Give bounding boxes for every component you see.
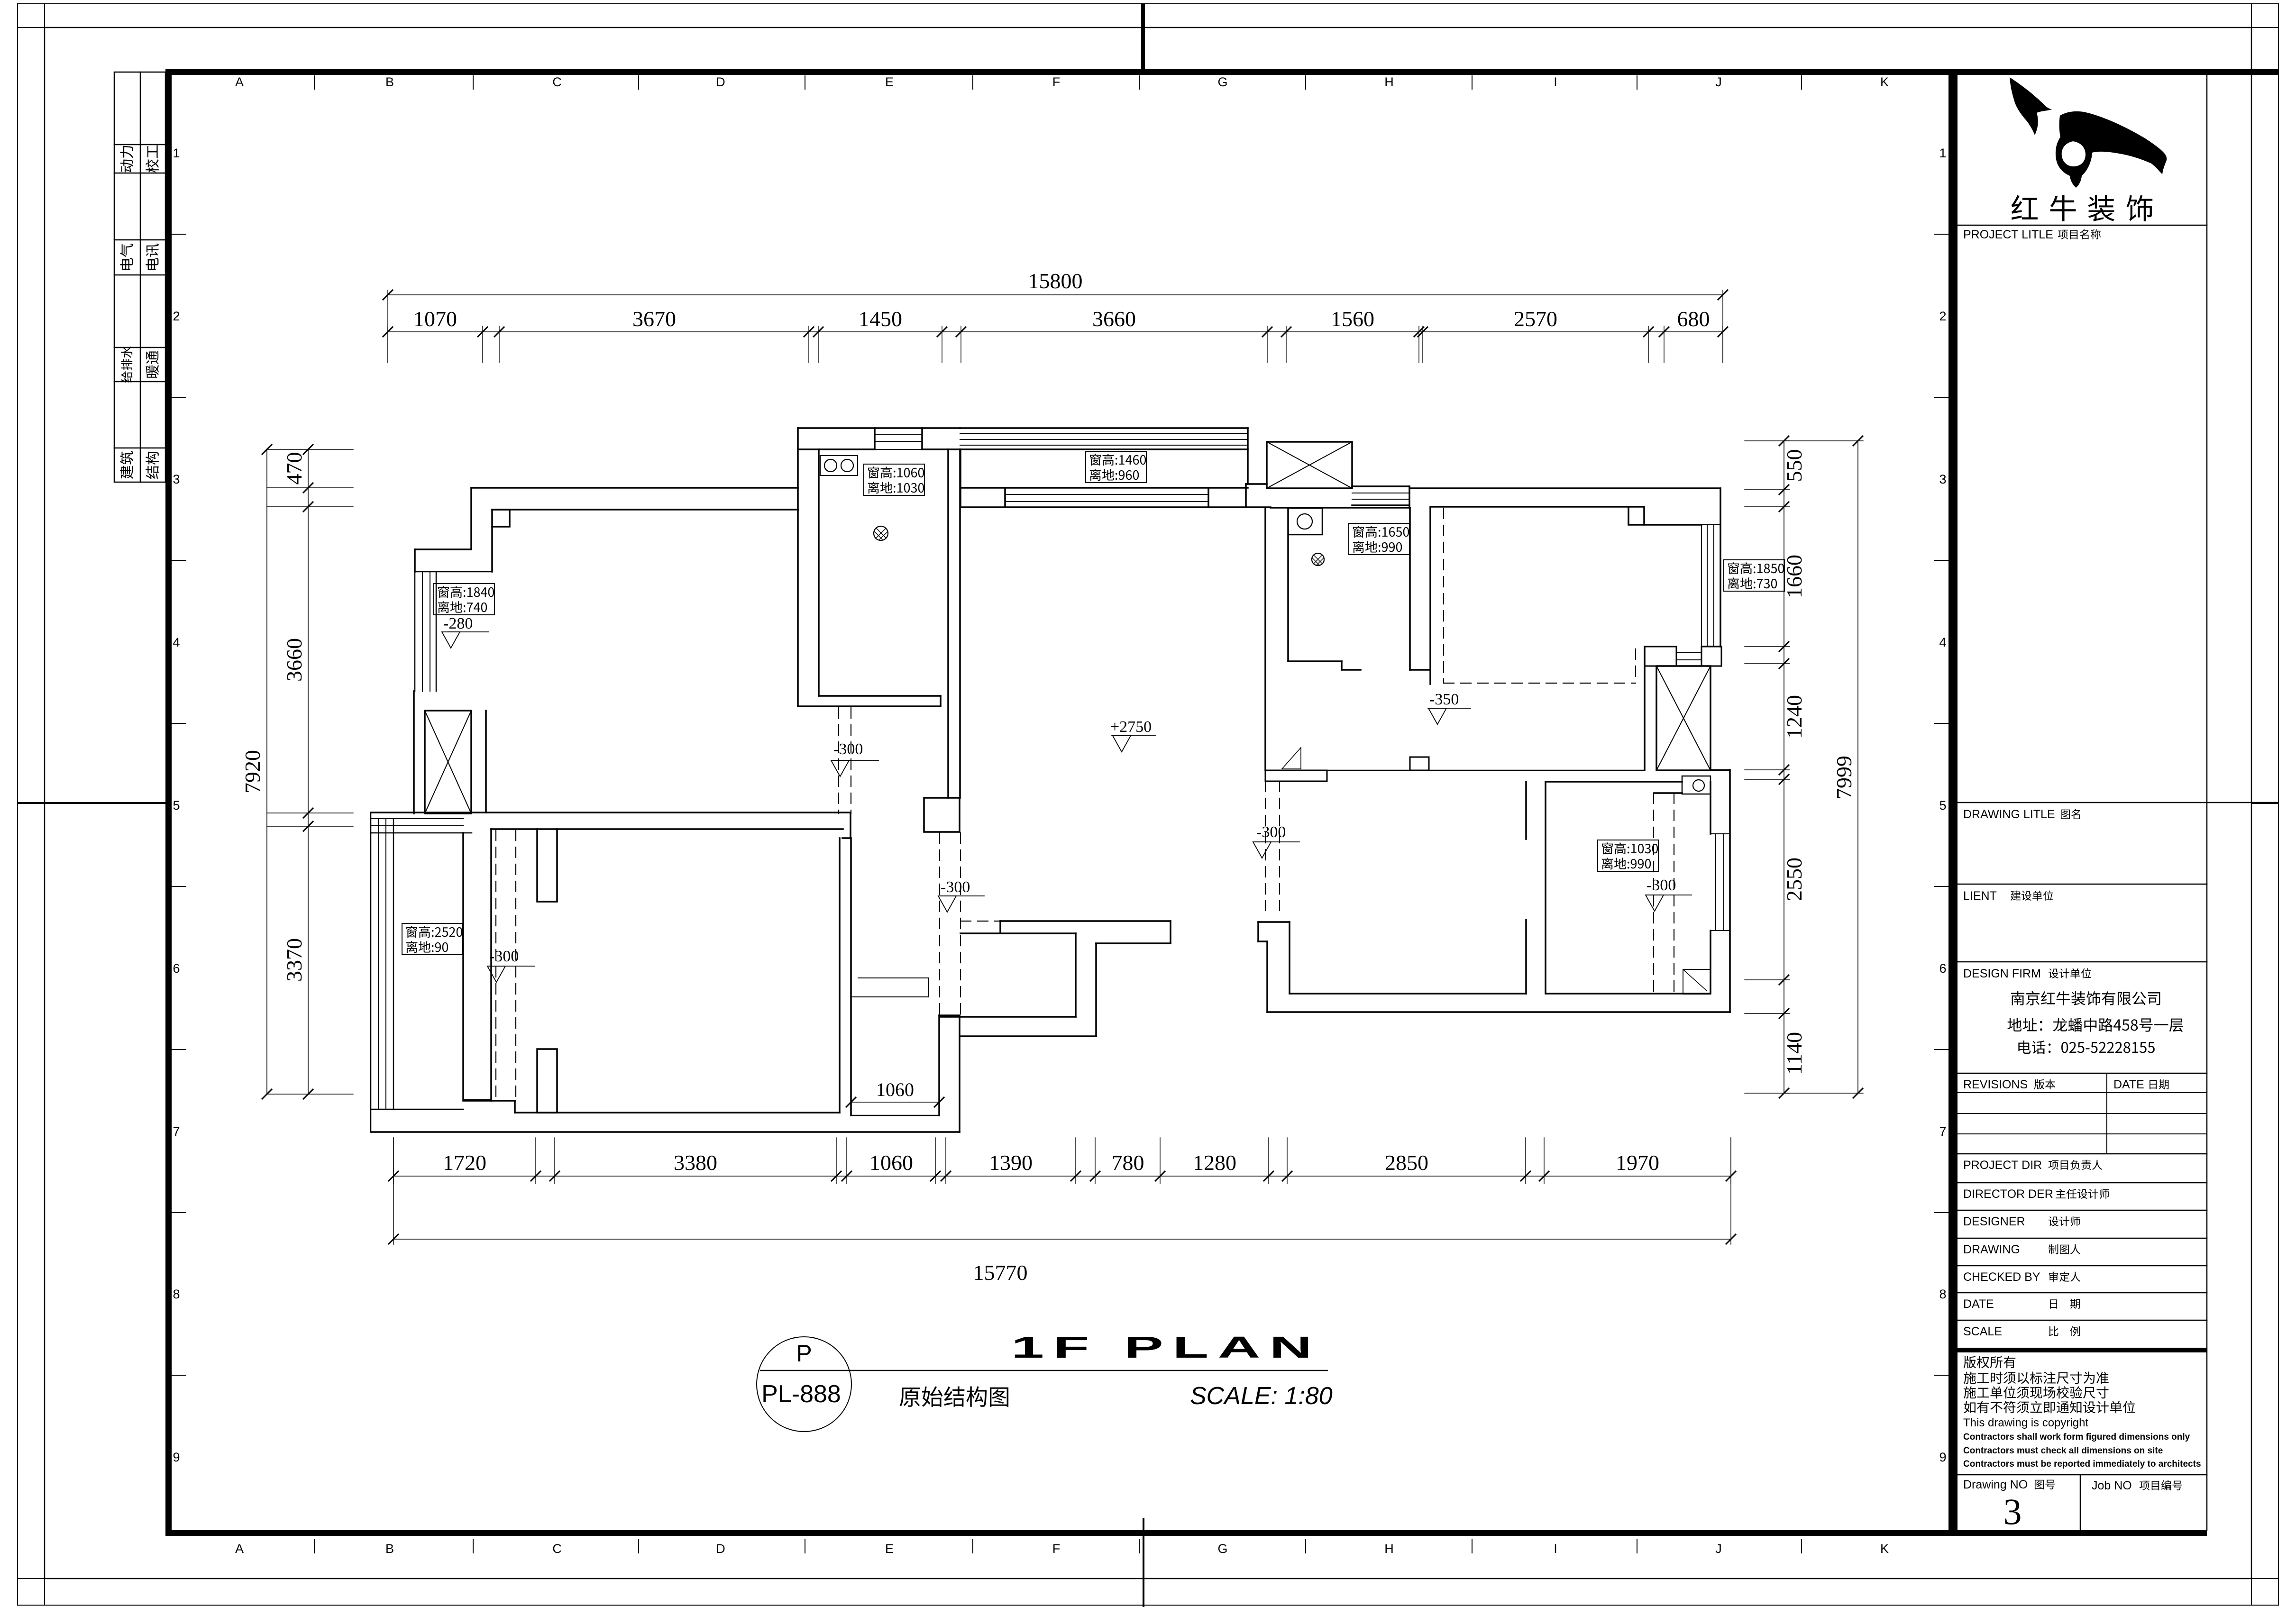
- svg-text:DESIGNER: DESIGNER: [1963, 1215, 2025, 1228]
- svg-text:Job NO: Job NO: [2092, 1479, 2132, 1492]
- svg-text:SCALE: SCALE: [1963, 1325, 2002, 1338]
- svg-text:F: F: [1052, 1542, 1061, 1556]
- svg-text:3660: 3660: [282, 638, 306, 682]
- svg-text:P: P: [796, 1340, 812, 1367]
- svg-text:1F PLAN: 1F PLAN: [1011, 1330, 1321, 1364]
- svg-text:G: G: [1217, 75, 1227, 89]
- svg-text:7: 7: [173, 1124, 180, 1139]
- svg-text:1140: 1140: [1782, 1032, 1806, 1075]
- svg-text:1: 1: [173, 146, 180, 160]
- svg-text:7: 7: [1939, 1124, 1946, 1139]
- svg-text:15770: 15770: [973, 1260, 1028, 1285]
- svg-text:7920: 7920: [240, 750, 265, 794]
- svg-text:DIRECTOR DER: DIRECTOR DER: [1963, 1187, 2053, 1201]
- svg-text:B: B: [385, 1542, 394, 1556]
- svg-text:PL-888: PL-888: [761, 1380, 841, 1408]
- svg-text:Drawing NO: Drawing NO: [1963, 1478, 2028, 1491]
- svg-text:K: K: [1880, 75, 1889, 89]
- svg-text:J: J: [1715, 75, 1722, 89]
- svg-text:E: E: [885, 1542, 894, 1556]
- svg-text:780: 780: [1112, 1150, 1144, 1175]
- svg-text:SCALE: 1:80: SCALE: 1:80: [1190, 1382, 1333, 1410]
- svg-text:3670: 3670: [632, 307, 676, 331]
- svg-text:-300: -300: [489, 948, 519, 965]
- svg-text:I: I: [1554, 75, 1557, 89]
- svg-text:-280: -280: [443, 615, 473, 632]
- svg-text:1060: 1060: [869, 1150, 913, 1175]
- svg-text:5: 5: [1939, 798, 1946, 813]
- svg-text:6: 6: [1939, 961, 1946, 976]
- svg-text:1070: 1070: [413, 307, 457, 331]
- svg-text:2550: 2550: [1782, 858, 1806, 901]
- svg-text:9: 9: [1939, 1450, 1946, 1464]
- svg-text:REVISIONS: REVISIONS: [1963, 1078, 2028, 1091]
- svg-text:680: 680: [1677, 307, 1710, 331]
- svg-text:Contractors shall work form fi: Contractors shall work form figured dime…: [1963, 1432, 2190, 1442]
- svg-text:CHECKED BY: CHECKED BY: [1963, 1270, 2040, 1284]
- svg-text:-300: -300: [833, 740, 863, 758]
- svg-text:D: D: [716, 75, 725, 89]
- svg-text:2570: 2570: [1514, 307, 1557, 331]
- svg-text:-350: -350: [1429, 691, 1459, 708]
- svg-text:A: A: [235, 1542, 244, 1556]
- svg-text:3660: 3660: [1092, 307, 1136, 331]
- svg-text:8: 8: [1939, 1287, 1946, 1301]
- svg-text:-300: -300: [1256, 823, 1286, 841]
- svg-text:1660: 1660: [1782, 555, 1806, 598]
- svg-text:6: 6: [173, 961, 180, 976]
- svg-text:8: 8: [173, 1287, 180, 1301]
- svg-text:2: 2: [173, 309, 180, 323]
- svg-text:DESIGN FIRM: DESIGN FIRM: [1963, 967, 2041, 980]
- svg-text:9: 9: [173, 1450, 180, 1464]
- svg-text:Contractors must check all dim: Contractors must check all dimensions on…: [1963, 1446, 2163, 1456]
- svg-text:F: F: [1052, 75, 1061, 89]
- svg-text:DATE: DATE: [2113, 1078, 2144, 1091]
- svg-text:1060: 1060: [876, 1079, 914, 1100]
- svg-text:1280: 1280: [1193, 1150, 1236, 1175]
- svg-text:PROJECT DIR: PROJECT DIR: [1963, 1159, 2042, 1172]
- svg-text:I: I: [1554, 1542, 1557, 1556]
- svg-text:LIENT: LIENT: [1963, 889, 1997, 903]
- svg-text:3: 3: [1939, 472, 1946, 486]
- svg-text:DRAWING: DRAWING: [1963, 1243, 2020, 1256]
- svg-text:4: 4: [1939, 635, 1946, 649]
- svg-text:470: 470: [282, 452, 306, 485]
- svg-text:DATE: DATE: [1963, 1297, 1994, 1311]
- svg-text:15800: 15800: [1028, 269, 1083, 293]
- svg-text:3: 3: [2003, 1491, 2022, 1532]
- svg-text:This drawing is copyright: This drawing is copyright: [1963, 1416, 2088, 1429]
- svg-text:G: G: [1217, 1542, 1227, 1556]
- svg-text:Contractors must be reported i: Contractors must be reported immediately…: [1963, 1459, 2201, 1469]
- svg-text:2: 2: [1939, 309, 1946, 323]
- svg-text:-300: -300: [1647, 877, 1676, 894]
- svg-text:E: E: [885, 75, 894, 89]
- svg-text:C: C: [552, 75, 562, 89]
- svg-text:1: 1: [1939, 146, 1946, 160]
- svg-text:3370: 3370: [282, 938, 306, 982]
- svg-text:J: J: [1715, 1542, 1722, 1556]
- svg-text:4: 4: [173, 635, 180, 649]
- svg-text:1560: 1560: [1331, 307, 1374, 331]
- svg-text:1450: 1450: [859, 307, 902, 331]
- svg-text:-300: -300: [941, 878, 970, 896]
- svg-text:PROJECT LITLE: PROJECT LITLE: [1963, 228, 2053, 241]
- svg-text:K: K: [1880, 1542, 1889, 1556]
- svg-text:550: 550: [1782, 449, 1806, 482]
- svg-text:B: B: [385, 75, 394, 89]
- svg-text:H: H: [1384, 1542, 1394, 1556]
- svg-text:3380: 3380: [674, 1150, 717, 1175]
- svg-text:5: 5: [173, 798, 180, 813]
- svg-text:DRAWING LITLE: DRAWING LITLE: [1963, 808, 2055, 821]
- svg-text:D: D: [716, 1542, 725, 1556]
- svg-text:A: A: [235, 75, 244, 89]
- svg-text:1390: 1390: [989, 1150, 1033, 1175]
- svg-text:1970: 1970: [1616, 1150, 1659, 1175]
- svg-text:C: C: [552, 1542, 562, 1556]
- svg-text:H: H: [1384, 75, 1394, 89]
- svg-text:1240: 1240: [1782, 695, 1806, 739]
- svg-text:1720: 1720: [443, 1150, 486, 1175]
- svg-text:2850: 2850: [1385, 1150, 1428, 1175]
- svg-text:3: 3: [173, 472, 180, 486]
- svg-text:+2750: +2750: [1110, 718, 1152, 736]
- svg-text:7999: 7999: [1832, 756, 1856, 799]
